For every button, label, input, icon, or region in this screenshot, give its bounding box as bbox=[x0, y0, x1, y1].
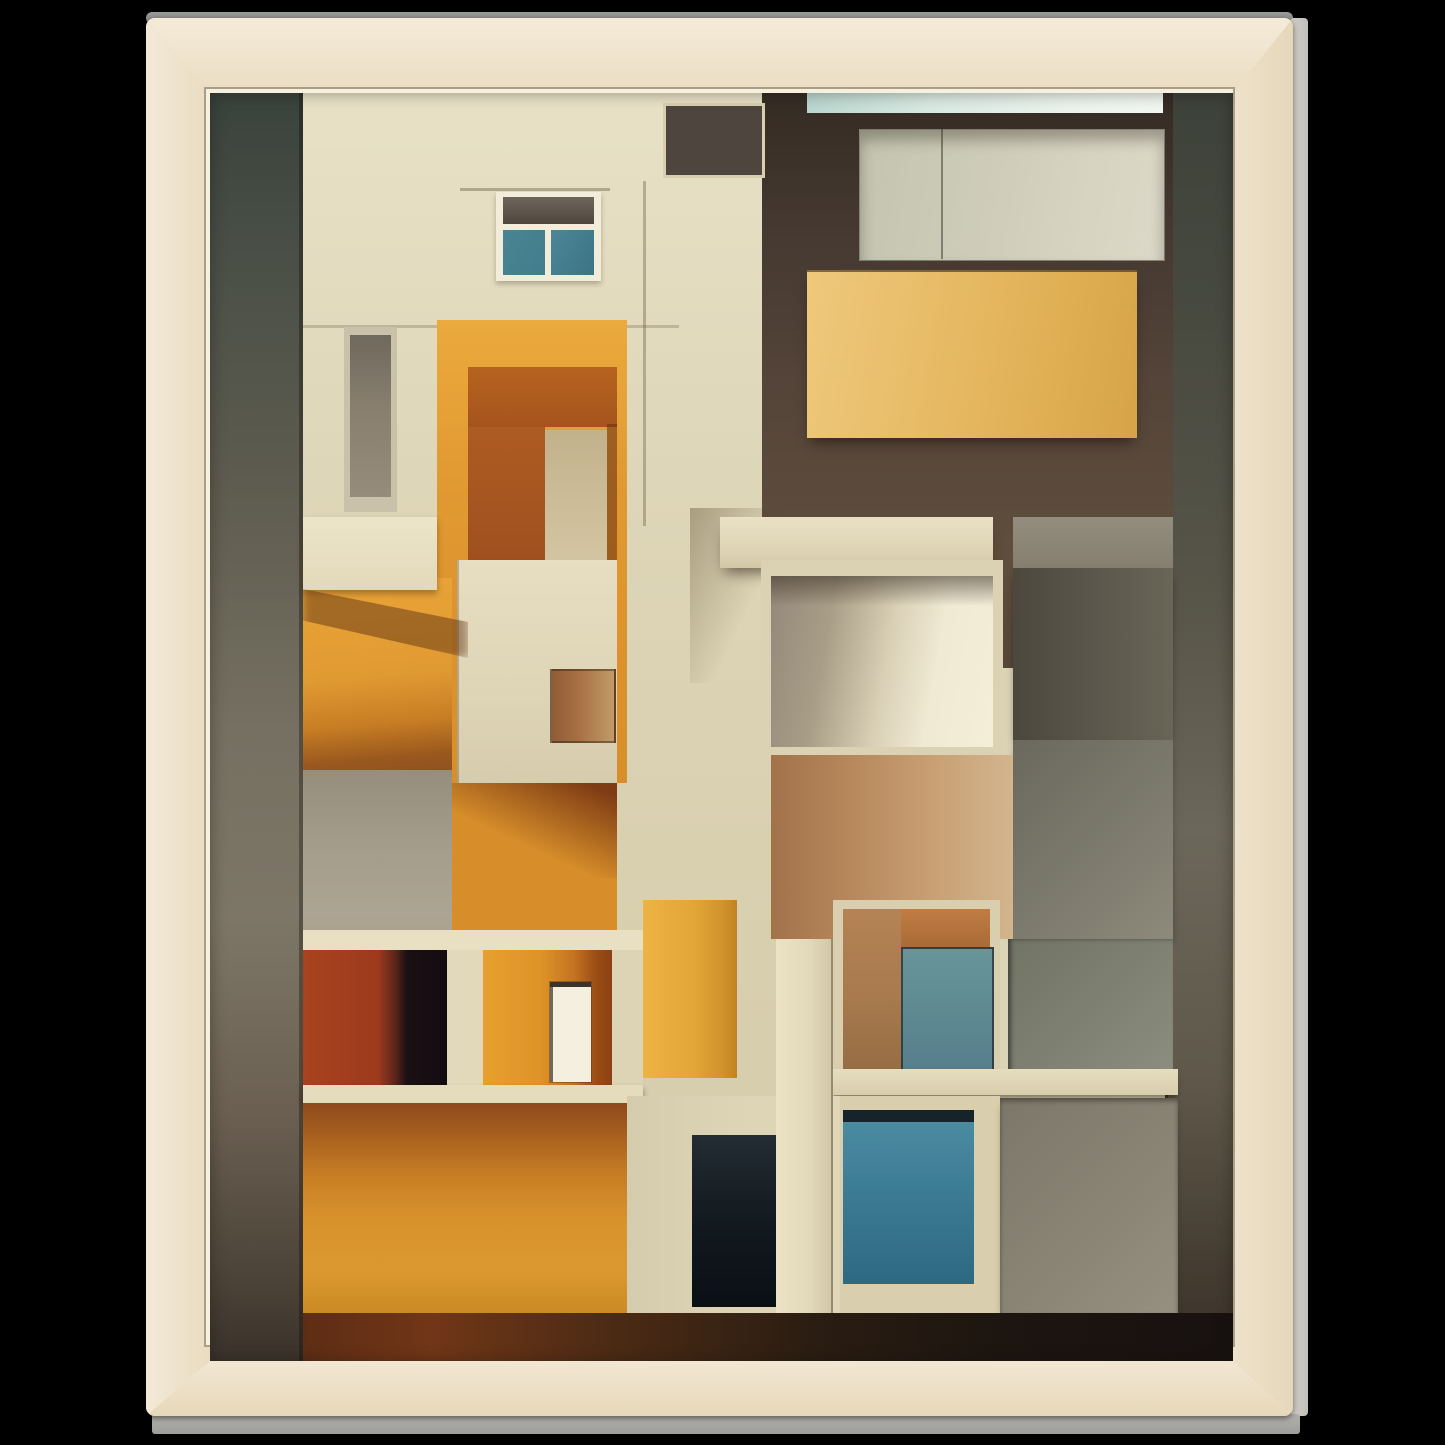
art-print bbox=[210, 93, 1233, 1361]
screenshot-root: { "meta": { "kind": "framed-art-print-mo… bbox=[0, 0, 1445, 1445]
frame-bar-right bbox=[1233, 18, 1293, 1416]
frame-bottom-shadow-edge bbox=[152, 1414, 1300, 1434]
artwork-vignette bbox=[210, 93, 1233, 1361]
frame-bar-top bbox=[146, 18, 1293, 93]
frame-bar-bottom bbox=[146, 1361, 1293, 1416]
frame-bar-left bbox=[146, 18, 210, 1416]
